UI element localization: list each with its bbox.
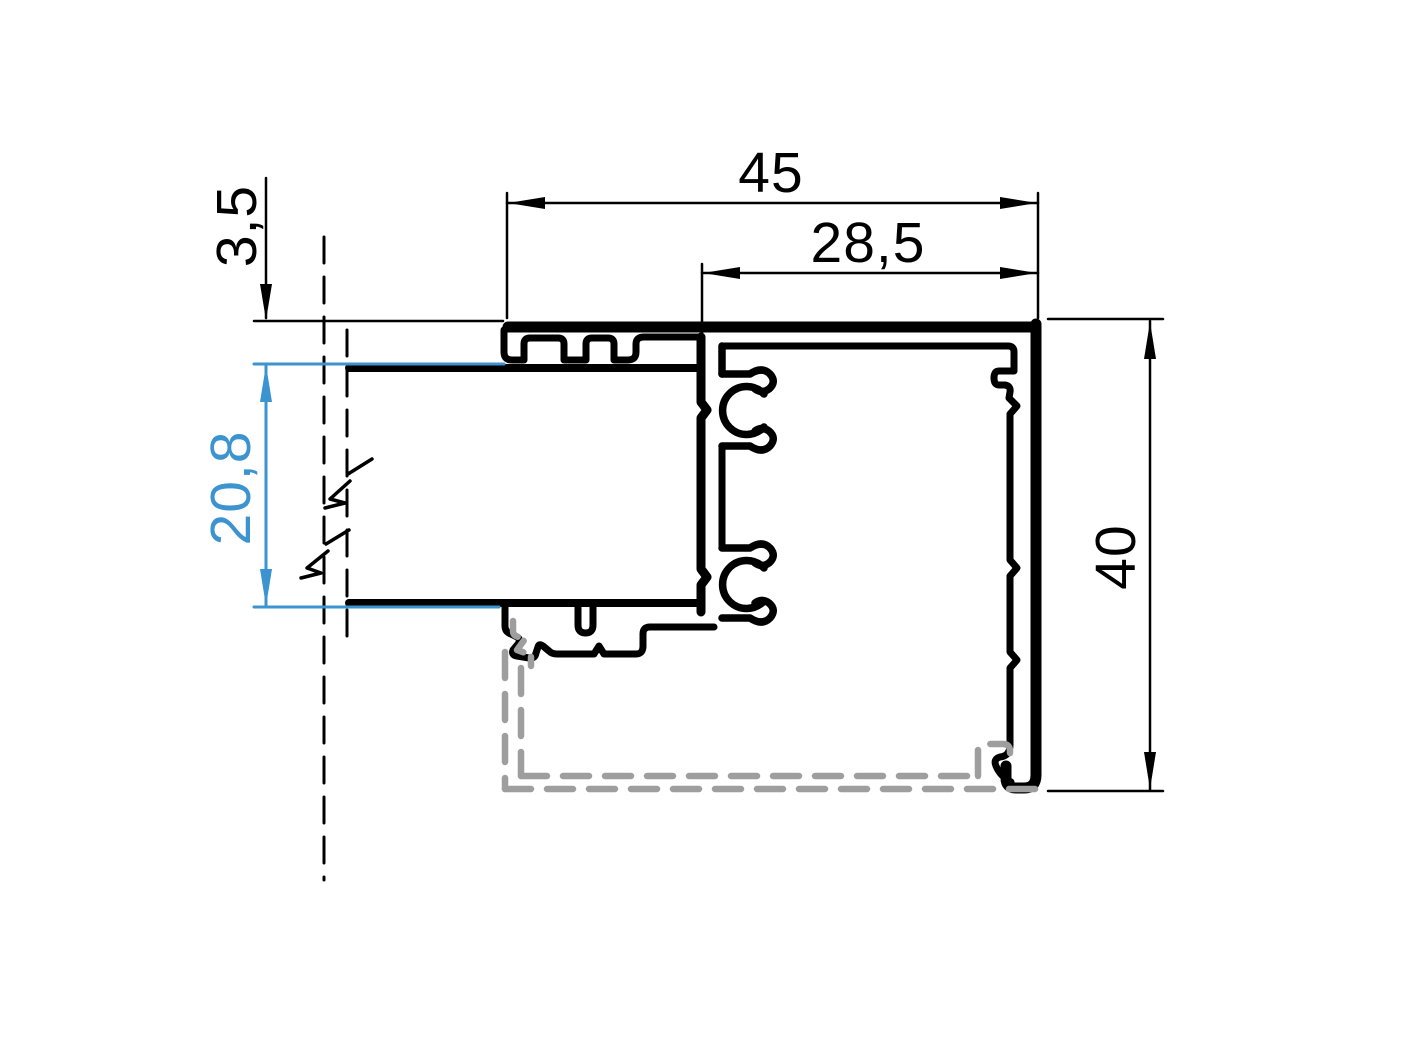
arrow-left-icon: [508, 197, 545, 209]
dimension-glass-thickness: 20,8: [199, 364, 504, 607]
glazing-bead-top: [504, 330, 699, 360]
arrowheads: [260, 284, 272, 320]
sash-profile-phantom: [505, 621, 1050, 789]
dimension-total-width: 45: [507, 141, 1038, 318]
arrow-up-icon: [1144, 322, 1156, 359]
dimension-bead-offset: 3,5: [205, 178, 503, 321]
arrow-left-icon: [703, 267, 740, 279]
profile-drawing: 45 28,5 3,5 20,8: [0, 0, 1413, 1058]
glass-centerlines: [324, 237, 347, 880]
arrow-right-icon: [1000, 197, 1037, 209]
dim-label-glass-thickness: 20,8: [199, 431, 263, 546]
glazing-bead-bottom: [505, 606, 714, 658]
dim-label-bead-offset: 3,5: [205, 185, 269, 267]
dimension-total-height: 40: [1048, 319, 1163, 791]
screw-clip-top: [722, 346, 773, 450]
drawing-canvas: 45 28,5 3,5 20,8: [0, 0, 1413, 1058]
dim-label-total-width: 45: [738, 141, 803, 205]
central-wall-outer-face: [701, 337, 707, 612]
frame-profile: [504, 324, 1036, 788]
gasket-slot: [578, 606, 593, 633]
arrow-down-icon: [260, 284, 272, 320]
arrow-down-icon: [260, 569, 272, 606]
arrow-down-icon: [1144, 752, 1156, 789]
dim-label-total-height: 40: [1084, 524, 1148, 589]
dimension-inner-width: 28,5: [702, 211, 1038, 333]
arrow-right-icon: [1000, 267, 1037, 279]
arrow-up-icon: [260, 365, 272, 402]
dim-label-inner-width: 28,5: [811, 211, 926, 275]
screw-clip-bottom: [722, 544, 773, 622]
glass-pane: [301, 368, 698, 603]
